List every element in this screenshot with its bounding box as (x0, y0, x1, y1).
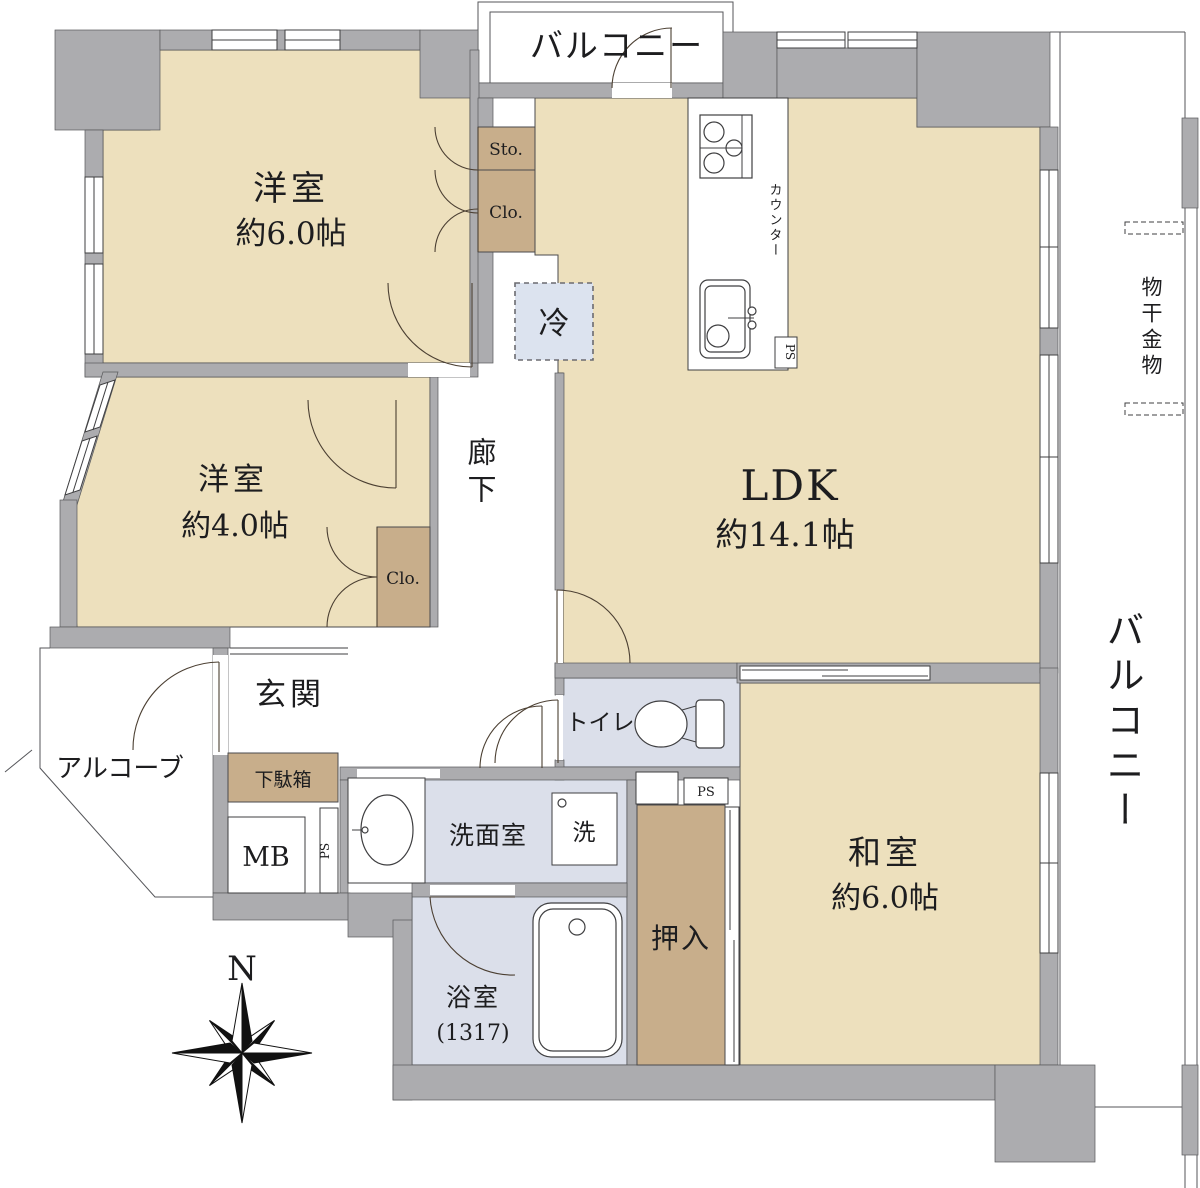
label-bath-name: 浴室 (446, 983, 500, 1012)
label-clo1: Clo. (489, 203, 523, 223)
label-counter: カウンター (767, 183, 782, 258)
label-bath-size: (1317) (436, 1021, 509, 1046)
label-north: N (227, 949, 257, 989)
label-ps-entry: PS (318, 843, 332, 859)
floor-plan-svg: バルコニー 洋室 約6.0帖 洋室 約4.0帖 LDK 約14.1帖 和室 約6… (0, 0, 1200, 1188)
label-room2-name: 洋室 (198, 462, 268, 498)
label-washitsu-size: 約6.0帖 (831, 881, 939, 916)
label-balcony-right: バルコニー (1100, 610, 1144, 835)
label-balcony-top: バルコニー (530, 26, 704, 65)
label-clo2: Clo. (386, 569, 420, 589)
label-entrance: 玄関 (255, 677, 325, 713)
toilet-icon (635, 700, 724, 748)
label-room1-name: 洋室 (253, 169, 329, 209)
label-ps-toilet: PS (697, 785, 715, 800)
label-washer: 洗 (573, 820, 596, 846)
floor-plan: バルコニー 洋室 約6.0帖 洋室 約4.0帖 LDK 約14.1帖 和室 約6… (0, 0, 1200, 1188)
label-room1-size: 約6.0帖 (235, 216, 346, 252)
label-ldk-size: 約14.1帖 (715, 515, 854, 554)
label-getabako: 下駄箱 (254, 769, 311, 791)
room-western2 (62, 377, 430, 627)
label-washroom: 洗面室 (449, 821, 527, 850)
label-washitsu-name: 和室 (848, 833, 922, 872)
label-laundry-hardware: 物干金物 (1139, 276, 1163, 380)
small-duct-box (636, 772, 678, 804)
laundry-hardware-mark (1125, 222, 1183, 234)
label-toilet: トイレ (566, 710, 635, 736)
label-mb: MB (242, 842, 290, 873)
label-ps-kitchen: PS (783, 344, 797, 360)
sink-icon (700, 280, 756, 358)
label-corridor: 廊下 (463, 437, 497, 511)
label-fridge: 冷 (539, 306, 570, 342)
label-room2-size: 約4.0帖 (181, 509, 289, 544)
laundry-hardware-mark (1125, 403, 1183, 415)
label-alcove: アルコーブ (56, 754, 184, 784)
room-washitsu (740, 683, 1043, 1065)
washbasin-icon (348, 778, 425, 883)
label-sto: Sto. (489, 140, 523, 160)
label-oshiire: 押入 (651, 922, 711, 955)
compass-rose (172, 983, 312, 1123)
bathtub-icon (533, 903, 622, 1057)
label-ldk-name: LDK (741, 461, 840, 510)
